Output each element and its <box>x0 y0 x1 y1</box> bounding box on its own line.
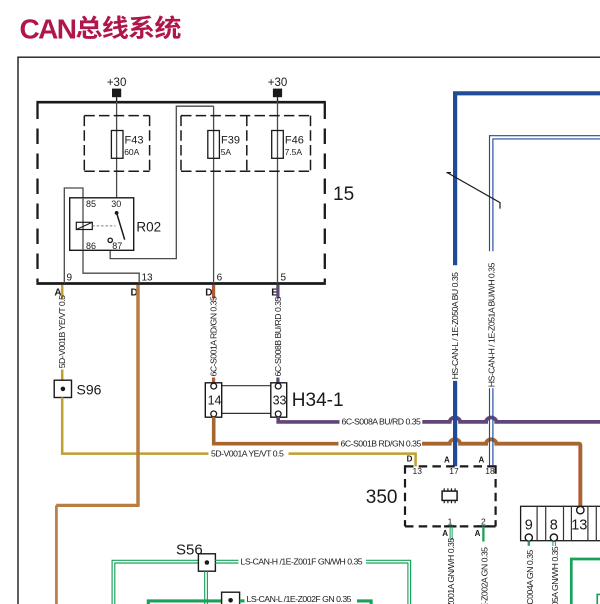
svg-text:5A: 5A <box>221 147 232 157</box>
svg-text:13: 13 <box>142 273 154 284</box>
svg-text:+30: +30 <box>268 77 288 89</box>
svg-text:6C-S001A RD/GN 0.35: 6C-S001A RD/GN 0.35 <box>209 296 219 376</box>
svg-text:H34-1: H34-1 <box>292 390 344 411</box>
svg-text:C004A GN 0.35: C004A GN 0.35 <box>525 550 535 604</box>
svg-text:CAN: CAN <box>20 13 76 44</box>
svg-text:7.5A: 7.5A <box>285 147 303 157</box>
svg-text:HS-CAN-L / 1E-Z050A BU 0.35: HS-CAN-L / 1E-Z050A BU 0.35 <box>450 272 460 380</box>
svg-text:18: 18 <box>485 466 495 476</box>
svg-text:30: 30 <box>111 199 121 209</box>
svg-text:S96: S96 <box>77 381 102 397</box>
svg-text:R02: R02 <box>136 219 161 234</box>
svg-text:LS-CAN-H /1E-Z001F GN/WH 0.35: LS-CAN-H /1E-Z001F GN/WH 0.35 <box>241 556 363 566</box>
svg-text:6C-S008B BU/RD 0.35: 6C-S008B BU/RD 0.35 <box>273 296 283 376</box>
svg-text:HS-CAN-H / 1E-Z051A BU/WH 0.35: HS-CAN-H / 1E-Z051A BU/WH 0.35 <box>486 262 496 387</box>
svg-text:A: A <box>479 455 485 464</box>
svg-text:350: 350 <box>366 487 398 508</box>
svg-text:8: 8 <box>550 517 558 533</box>
svg-text:5D-V001A YE/VT 0.5: 5D-V001A YE/VT 0.5 <box>211 448 284 458</box>
svg-text:6: 6 <box>217 273 223 284</box>
svg-text:C005A GN/WH 0.35: C005A GN/WH 0.35 <box>550 546 560 604</box>
svg-text:85: 85 <box>86 199 96 209</box>
svg-text:6C-S008A BU/RD 0.35: 6C-S008A BU/RD 0.35 <box>342 417 422 427</box>
svg-text:9: 9 <box>525 517 533 533</box>
svg-text:LS-CAN-L /1E-Z002A GN 0.35: LS-CAN-L /1E-Z002A GN 0.35 <box>479 547 489 604</box>
svg-text:87: 87 <box>112 241 122 251</box>
svg-text:6C-S001B RD/GN 0.35: 6C-S001B RD/GN 0.35 <box>341 439 422 449</box>
svg-text:17: 17 <box>449 466 459 476</box>
svg-text:9: 9 <box>67 273 73 284</box>
svg-text:60A: 60A <box>124 147 139 157</box>
svg-text:13: 13 <box>413 466 423 476</box>
svg-text:LS-CAN-H /1E-Z001A GN/WH 0.35: LS-CAN-H /1E-Z001A GN/WH 0.35 <box>446 538 456 604</box>
svg-text:5D-V001B YE/VT 0.5: 5D-V001B YE/VT 0.5 <box>57 295 67 368</box>
svg-text:F39: F39 <box>221 135 240 147</box>
svg-text:86: 86 <box>86 241 96 251</box>
svg-text:D: D <box>407 454 413 463</box>
svg-text:F43: F43 <box>125 135 144 147</box>
svg-text:A: A <box>475 529 481 538</box>
svg-text:15: 15 <box>333 184 354 205</box>
svg-text:13: 13 <box>571 517 587 533</box>
svg-text:A: A <box>442 529 448 538</box>
svg-text:5: 5 <box>281 273 287 284</box>
svg-text:33: 33 <box>273 394 287 408</box>
svg-text:2: 2 <box>481 517 486 527</box>
svg-text:14: 14 <box>208 394 222 408</box>
svg-text:F46: F46 <box>285 135 304 147</box>
svg-text:+30: +30 <box>107 77 127 89</box>
svg-text:A: A <box>444 455 450 464</box>
svg-text:1: 1 <box>448 517 453 527</box>
svg-text:LS-CAN-L /1E-Z002F GN 0.35: LS-CAN-L /1E-Z002F GN 0.35 <box>247 594 352 604</box>
